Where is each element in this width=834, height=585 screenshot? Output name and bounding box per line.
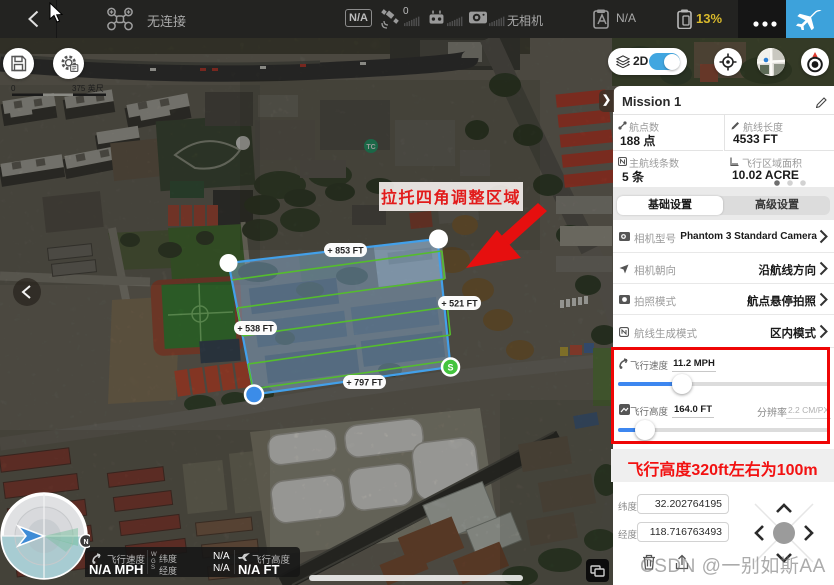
- svg-text:N: N: [83, 539, 88, 546]
- svg-text:+ 538 FT: + 538 FT: [237, 324, 274, 334]
- svg-text:+ 797 FT: + 797 FT: [346, 378, 383, 388]
- svg-text:拉托四角调整区域: 拉托四角调整区域: [381, 188, 521, 207]
- svg-text:0: 0: [11, 84, 16, 93]
- svg-text:+ 853 FT: + 853 FT: [327, 246, 364, 256]
- svg-text:S: S: [447, 363, 453, 373]
- svg-text:+ 521 FT: + 521 FT: [441, 299, 478, 309]
- svg-text:375 英尺: 375 英尺: [72, 83, 104, 93]
